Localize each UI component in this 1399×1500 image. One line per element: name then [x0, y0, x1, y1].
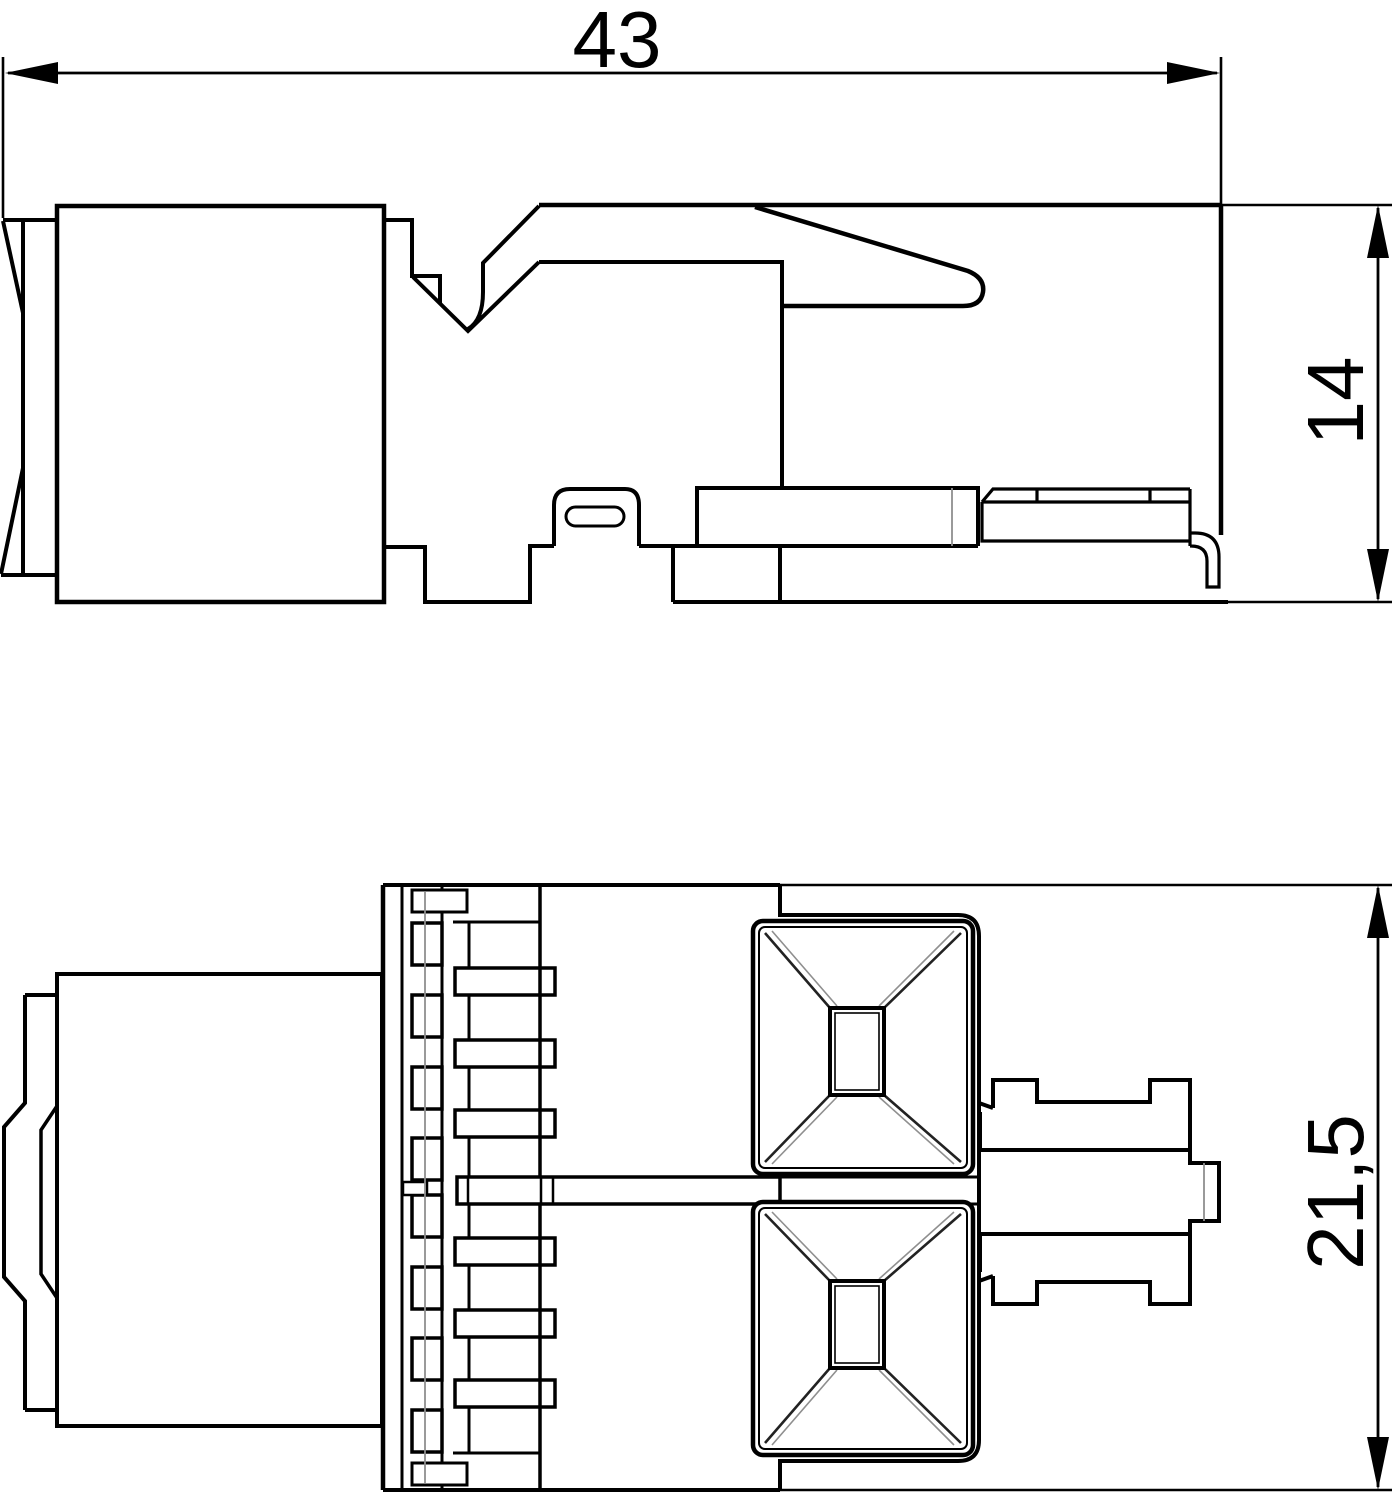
technical-drawing: 43 14 — [0, 0, 1399, 1500]
drawing-canvas: 43 14 — [0, 0, 1399, 1500]
plug-body-side — [57, 206, 384, 602]
dimension-label-length: 43 — [573, 0, 662, 84]
dimension-label-height: 14 — [1291, 357, 1380, 446]
funnel-upper-center-hole — [830, 1008, 884, 1095]
dimension-label-depth: 21,5 — [1291, 1114, 1380, 1270]
funnel-upper — [753, 921, 973, 1174]
funnel-lower — [753, 1202, 973, 1455]
funnel-lower-center-hole — [830, 1281, 884, 1368]
